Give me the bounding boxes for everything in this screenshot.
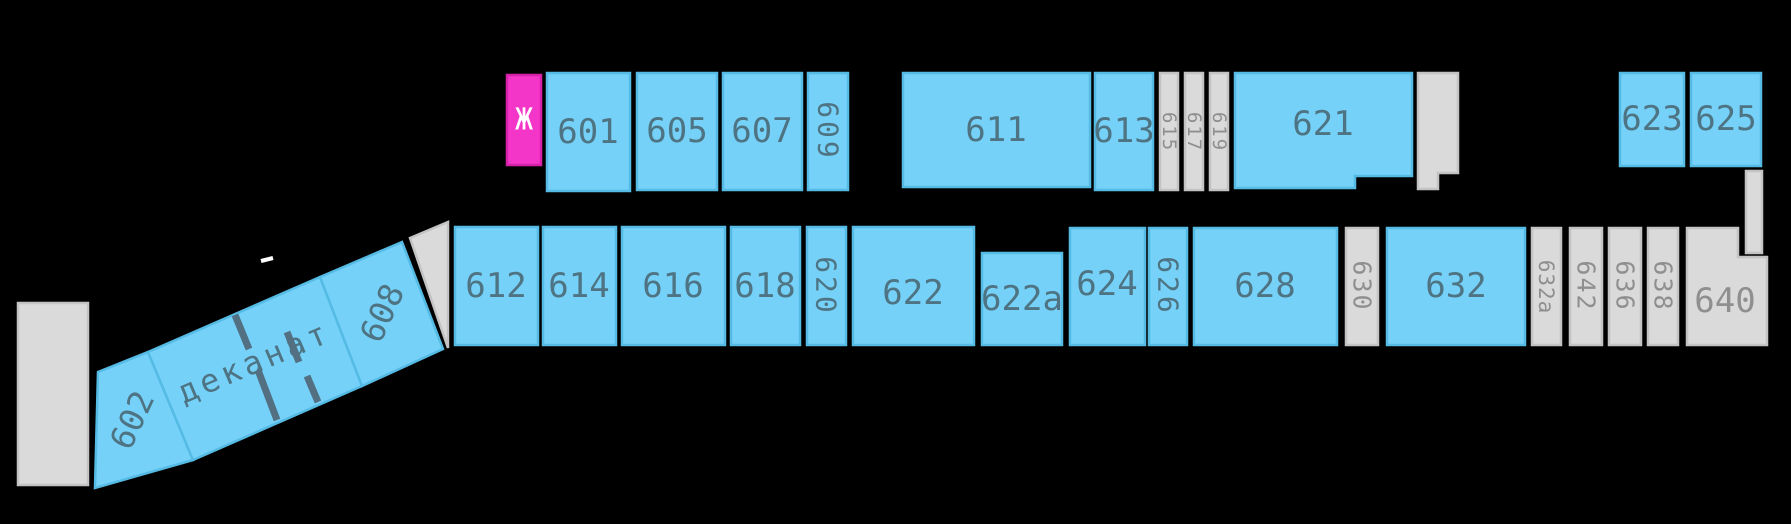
room-label-605: 605 bbox=[646, 111, 707, 151]
room-label-632a: 632a bbox=[1534, 260, 1558, 315]
room-block-top-right bbox=[1418, 73, 1458, 189]
room-label-632: 632 bbox=[1425, 266, 1486, 306]
room-label-zh: Ж bbox=[515, 103, 533, 138]
room-label-638: 638 bbox=[1649, 260, 1678, 311]
room-shape-block-left bbox=[18, 303, 88, 485]
room-label-615: 615 bbox=[1158, 112, 1180, 152]
room-622a[interactable]: 622a bbox=[981, 253, 1063, 345]
floor-plan-svg: Ж601605607609611613615617619621623625612… bbox=[0, 0, 1791, 524]
room-630[interactable]: 630 bbox=[1346, 228, 1378, 345]
room-632[interactable]: 632 bbox=[1387, 228, 1525, 345]
room-strip-below-625 bbox=[1746, 171, 1762, 253]
room-609[interactable]: 609 bbox=[808, 73, 848, 190]
room-612[interactable]: 612 bbox=[455, 227, 538, 345]
room-label-611: 611 bbox=[965, 110, 1026, 150]
room-label-636: 636 bbox=[1611, 260, 1640, 311]
room-619[interactable]: 619 bbox=[1208, 73, 1230, 190]
room-label-616: 616 bbox=[642, 266, 703, 306]
room-621[interactable]: 621 bbox=[1235, 73, 1412, 188]
room-label-620: 620 bbox=[810, 256, 843, 316]
room-616[interactable]: 616 bbox=[622, 227, 725, 345]
room-zh[interactable]: Ж bbox=[507, 75, 541, 165]
room-label-625: 625 bbox=[1695, 99, 1756, 139]
room-label-613: 613 bbox=[1093, 111, 1154, 151]
room-label-623: 623 bbox=[1621, 99, 1682, 139]
room-638[interactable]: 638 bbox=[1648, 228, 1678, 345]
room-label-642: 642 bbox=[1572, 260, 1601, 311]
room-624[interactable]: 624 bbox=[1070, 228, 1145, 345]
room-617[interactable]: 617 bbox=[1183, 73, 1205, 190]
room-611[interactable]: 611 bbox=[903, 73, 1090, 187]
room-label-622: 622 bbox=[882, 273, 943, 313]
room-label-612: 612 bbox=[465, 266, 526, 306]
room-628[interactable]: 628 bbox=[1194, 228, 1337, 345]
room-label-622a: 622a bbox=[981, 279, 1063, 319]
room-label-617: 617 bbox=[1183, 112, 1205, 152]
room-label-630: 630 bbox=[1348, 260, 1377, 311]
room-636[interactable]: 636 bbox=[1609, 228, 1641, 345]
room-label-626: 626 bbox=[1152, 256, 1185, 316]
room-623[interactable]: 623 bbox=[1620, 73, 1684, 166]
floor-plan: Ж601605607609611613615617619621623625612… bbox=[0, 0, 1791, 524]
room-632a[interactable]: 632a bbox=[1532, 228, 1561, 345]
room-622[interactable]: 622 bbox=[853, 227, 974, 345]
room-label-640: 640 bbox=[1694, 281, 1755, 321]
room-625[interactable]: 625 bbox=[1691, 73, 1761, 166]
room-605[interactable]: 605 bbox=[637, 73, 717, 190]
room-626[interactable]: 626 bbox=[1149, 228, 1187, 345]
room-642[interactable]: 642 bbox=[1570, 228, 1602, 345]
room-601[interactable]: 601 bbox=[547, 73, 630, 191]
room-607[interactable]: 607 bbox=[723, 73, 802, 190]
room-614[interactable]: 614 bbox=[543, 227, 616, 345]
room-620[interactable]: 620 bbox=[807, 227, 846, 345]
room-label-624: 624 bbox=[1076, 264, 1137, 304]
room-618[interactable]: 618 bbox=[731, 227, 800, 345]
room-613[interactable]: 613 bbox=[1093, 73, 1154, 190]
room-shape-strip-below-625 bbox=[1746, 171, 1762, 253]
room-label-609: 609 bbox=[812, 101, 845, 161]
door-tick-0 bbox=[261, 258, 273, 261]
room-block-left bbox=[18, 303, 88, 485]
room-label-621: 621 bbox=[1292, 104, 1353, 144]
room-label-618: 618 bbox=[734, 266, 795, 306]
room-label-601: 601 bbox=[557, 112, 618, 152]
room-label-619: 619 bbox=[1208, 112, 1230, 152]
room-label-607: 607 bbox=[731, 111, 792, 151]
room-shape-block-top-right bbox=[1418, 73, 1458, 189]
room-label-628: 628 bbox=[1234, 266, 1295, 306]
room-label-614: 614 bbox=[548, 266, 609, 306]
room-615[interactable]: 615 bbox=[1158, 73, 1180, 190]
